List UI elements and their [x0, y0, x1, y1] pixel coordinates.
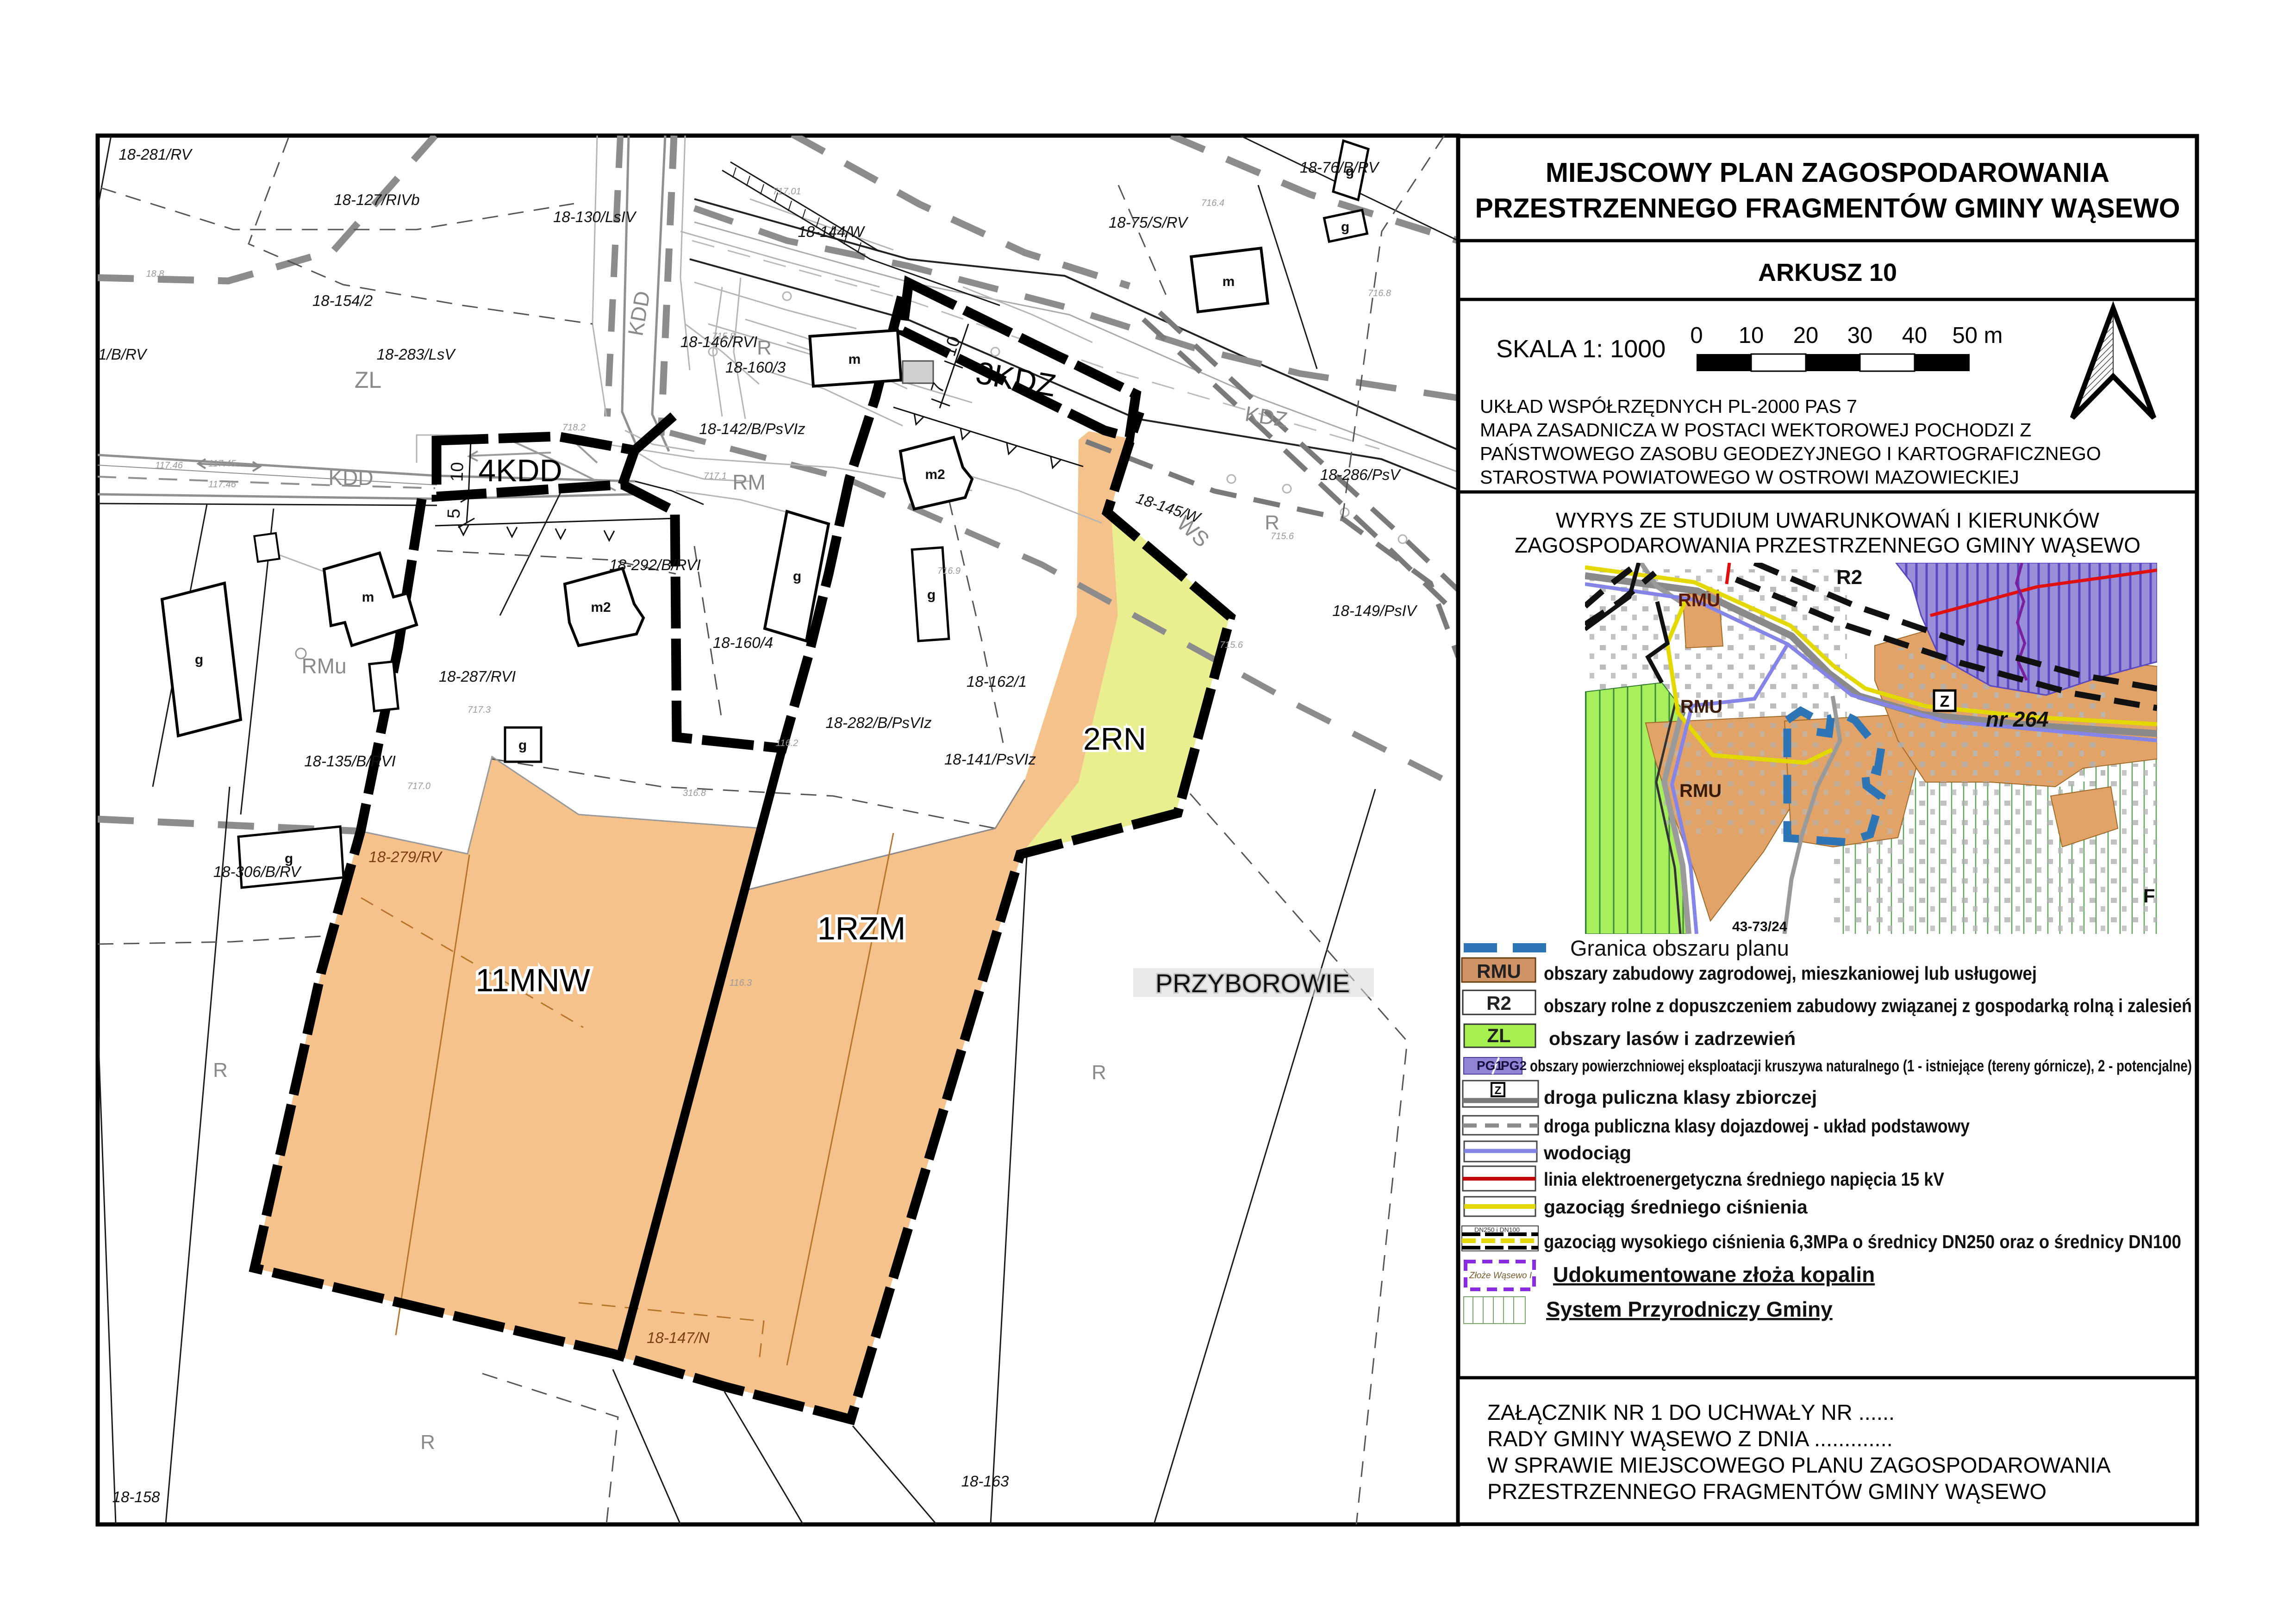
svg-text:g: g [793, 569, 801, 584]
svg-text:715.6: 715.6 [1271, 531, 1294, 541]
svg-text:18-135/B/RVI: 18-135/B/RVI [304, 752, 396, 770]
svg-text:718.2: 718.2 [562, 423, 586, 433]
svg-text:717.3: 717.3 [468, 705, 491, 715]
svg-text:117.46: 117.46 [155, 460, 183, 471]
svg-text:WYRYS ZE STUDIUM UWARUNKOWAŃ I: WYRYS ZE STUDIUM UWARUNKOWAŃ I KIERUNKÓW [1556, 508, 2099, 532]
svg-text:ZL: ZL [1487, 1025, 1510, 1046]
svg-text:ZAŁĄCZNIK NR 1 DO UCHWAŁY NR .: ZAŁĄCZNIK NR 1 DO UCHWAŁY NR ...... [1487, 1400, 1895, 1424]
svg-text:11MNW: 11MNW [475, 962, 590, 998]
svg-text:F: F [2143, 885, 2155, 907]
svg-text:RMU: RMU [1477, 960, 1521, 982]
svg-text:RADY GMINY WĄSEWO Z DNIA .....: RADY GMINY WĄSEWO Z DNIA ............. [1487, 1426, 1893, 1451]
svg-text:PG1: PG1 [1477, 1058, 1503, 1073]
svg-text:116.3: 116.3 [730, 978, 752, 988]
svg-text:RMU: RMU [1679, 781, 1722, 801]
svg-text:System Przyrodniczy Gminy: System Przyrodniczy Gminy [1546, 1297, 1833, 1321]
svg-text:gazociąg wysokiego ciśnienia 6: gazociąg wysokiego ciśnienia 6,3MPa o śr… [1544, 1231, 2181, 1252]
svg-text:18-292/B/RVI: 18-292/B/RVI [609, 556, 701, 573]
svg-text:m: m [849, 352, 861, 367]
svg-text:18-306/B/RV: 18-306/B/RV [213, 863, 302, 880]
svg-text:g: g [1341, 219, 1349, 235]
svg-text:SKALA 1: 1000: SKALA 1: 1000 [1496, 335, 1666, 363]
svg-text:5: 5 [444, 508, 464, 519]
svg-text:DN250 i DN100: DN250 i DN100 [1474, 1226, 1520, 1233]
svg-text:PAŃSTWOWEGO ZASOBU GEODEZYJNEG: PAŃSTWOWEGO ZASOBU GEODEZYJNEGO I KARTOG… [1480, 443, 2101, 464]
svg-text:obszary zabudowy zagrodowej, m: obszary zabudowy zagrodowej, mieszkaniow… [1544, 963, 2037, 984]
svg-text:R2: R2 [1486, 992, 1511, 1014]
svg-text:gazociąg średniego ciśnienia: gazociąg średniego ciśnienia [1544, 1196, 1808, 1218]
svg-text:PG2: PG2 [1501, 1058, 1527, 1073]
svg-text:RMU: RMU [1678, 590, 1720, 610]
svg-text:717.01: 717.01 [773, 187, 801, 197]
svg-text:droga puliczna klasy zbiorczej: droga puliczna klasy zbiorczej [1544, 1087, 1817, 1108]
svg-text:116.2: 116.2 [776, 738, 799, 748]
svg-text:717.1: 717.1 [704, 471, 727, 481]
svg-text:m: m [1223, 274, 1235, 289]
svg-text:obszary rolne z dopuszczeniem: obszary rolne z dopuszczeniem zabudowy z… [1544, 995, 2192, 1016]
svg-text:117.46: 117.46 [208, 479, 237, 490]
svg-text:40: 40 [1902, 323, 1928, 348]
svg-text:MAPA ZASADNICZA W POSTACI WEKT: MAPA ZASADNICZA W POSTACI WEKTOROWEJ POC… [1480, 419, 2031, 441]
svg-text:18-154/2: 18-154/2 [312, 292, 373, 309]
svg-text:18-130/LsIV: 18-130/LsIV [553, 208, 637, 225]
svg-text:g: g [518, 738, 527, 753]
svg-text:18-127/RIVb: 18-127/RIVb [334, 191, 419, 208]
svg-text:linia elektroenergetyczna śred: linia elektroenergetyczna średniego napi… [1544, 1169, 1945, 1190]
svg-text:g: g [195, 652, 203, 667]
svg-text:715.6: 715.6 [1220, 640, 1243, 650]
svg-text:Z: Z [1495, 1084, 1502, 1097]
svg-text:obszary lasów i zadrzewień: obszary lasów i zadrzewień [1549, 1028, 1796, 1049]
svg-text:18-160/3: 18-160/3 [725, 359, 786, 376]
svg-text:716.4: 716.4 [1201, 198, 1224, 208]
svg-text:18-160/4: 18-160/4 [713, 634, 773, 651]
svg-text:R: R [1265, 511, 1279, 534]
svg-text:m: m [362, 590, 374, 605]
svg-text:droga publiczna klasy dojazdow: droga publiczna klasy dojazdowej - układ… [1544, 1115, 1970, 1137]
svg-text:0: 0 [1690, 323, 1703, 348]
svg-text:18-144/W: 18-144/W [798, 223, 865, 240]
svg-text:18-76/B/RV: 18-76/B/RV [1300, 159, 1380, 176]
svg-text:wodociąg: wodociąg [1543, 1142, 1631, 1163]
svg-text:18-162/1: 18-162/1 [967, 673, 1027, 690]
svg-text:nr 264: nr 264 [1986, 707, 2049, 731]
svg-text:PRZESTRZENNEGO FRAGMENTÓW GMIN: PRZESTRZENNEGO FRAGMENTÓW GMINY WĄSEWO [1475, 193, 2180, 224]
svg-text:R: R [757, 336, 772, 359]
svg-text:18-149/PsIV: 18-149/PsIV [1332, 602, 1418, 619]
svg-text:KDD: KDD [328, 466, 373, 490]
svg-text:716.8: 716.8 [1368, 288, 1391, 298]
svg-text:18-75/S/RV: 18-75/S/RV [1109, 214, 1189, 231]
svg-text:MIEJSCOWY PLAN ZAGOSPODAROWANI: MIEJSCOWY PLAN ZAGOSPODAROWANIA [1546, 157, 2109, 188]
svg-text:43-73/24: 43-73/24 [1732, 919, 1787, 934]
svg-text:18-141/PsVIz: 18-141/PsVIz [944, 751, 1036, 768]
svg-text:UKŁAD WSPÓŁRZĘDNYCH PL-2000 PA: UKŁAD WSPÓŁRZĘDNYCH PL-2000 PAS 7 [1480, 396, 1857, 417]
svg-text:Udokumentowane złoża kopalin: Udokumentowane złoża kopalin [1553, 1262, 1875, 1287]
svg-text:717.0: 717.0 [407, 781, 430, 791]
svg-text:R: R [420, 1431, 435, 1454]
svg-text:716.9: 716.9 [937, 566, 961, 576]
svg-text:18-286/PsV: 18-286/PsV [1320, 466, 1401, 483]
svg-text:RM: RM [732, 470, 766, 494]
svg-text:Złoże Wąsewo I: Złoże Wąsewo I [1469, 1271, 1532, 1281]
svg-text:10: 10 [1739, 323, 1764, 348]
svg-text:18-281/RV: 18-281/RV [119, 146, 193, 163]
svg-text:18-147/N: 18-147/N [647, 1329, 710, 1346]
svg-text:316.8: 316.8 [683, 788, 706, 798]
svg-text:ZAGOSPODAROWANIA PRZESTRZENNEG: ZAGOSPODAROWANIA PRZESTRZENNEGO GMINY WĄ… [1515, 533, 2140, 557]
svg-text:20: 20 [1793, 323, 1819, 348]
svg-text:m2: m2 [925, 467, 945, 482]
svg-text:2RN: 2RN [1083, 721, 1146, 757]
svg-text:R2: R2 [1836, 566, 1862, 589]
svg-text:1RZM: 1RZM [817, 910, 906, 946]
svg-text:RMu: RMu [301, 654, 346, 678]
svg-text:Granica obszaru planu: Granica obszaru planu [1570, 936, 1789, 960]
svg-text:18-142/B/PsVIz: 18-142/B/PsVIz [699, 420, 805, 437]
svg-text:18.8: 18.8 [146, 269, 164, 279]
svg-text:18-282/B/PsVIz: 18-282/B/PsVIz [825, 714, 932, 731]
svg-text:18-163: 18-163 [961, 1473, 1009, 1490]
svg-text:ZL: ZL [355, 367, 381, 393]
svg-text:117.45: 117.45 [208, 459, 237, 469]
svg-text:10: 10 [447, 462, 467, 482]
svg-text:31/B/RV: 31/B/RV [90, 346, 148, 363]
svg-text:18-283/LsV: 18-283/LsV [377, 346, 456, 363]
svg-text:18-279/RV: 18-279/RV [368, 848, 443, 865]
svg-text:PRZESTRZENNEGO FRAGMENTÓW GMIN: PRZESTRZENNEGO FRAGMENTÓW GMINY WĄSEWO [1487, 1479, 2046, 1504]
svg-text:4KDD: 4KDD [478, 453, 562, 488]
svg-text:715.8: 715.8 [712, 331, 735, 342]
svg-text:STAROSTWA POWIATOWEGO W OSTROW: STAROSTWA POWIATOWEGO W OSTROWI MAZOWIEC… [1480, 466, 2019, 488]
svg-text:W SPRAWIE MIEJSCOWEGO PLANU ZA: W SPRAWIE MIEJSCOWEGO PLANU ZAGOSPODAROW… [1487, 1453, 2111, 1477]
svg-text:m2: m2 [591, 600, 611, 615]
svg-text:50 m: 50 m [1953, 323, 2003, 348]
svg-text:RMU: RMU [1680, 696, 1722, 717]
svg-text:PRZYBOROWIE: PRZYBOROWIE [1155, 969, 1350, 998]
svg-text:18-158: 18-158 [112, 1488, 160, 1505]
svg-text:R: R [213, 1059, 228, 1082]
svg-text:18-287/RVI: 18-287/RVI [439, 668, 516, 685]
svg-text:30: 30 [1847, 323, 1873, 348]
svg-text:R: R [1092, 1061, 1106, 1084]
svg-text:Z: Z [1940, 693, 1950, 710]
svg-text:ARKUSZ 10: ARKUSZ 10 [1758, 259, 1897, 286]
svg-text:g: g [927, 587, 936, 603]
svg-text:obszary powierzchniowej eksplo: obszary powierzchniowej eksploatacji kru… [1530, 1057, 2192, 1075]
